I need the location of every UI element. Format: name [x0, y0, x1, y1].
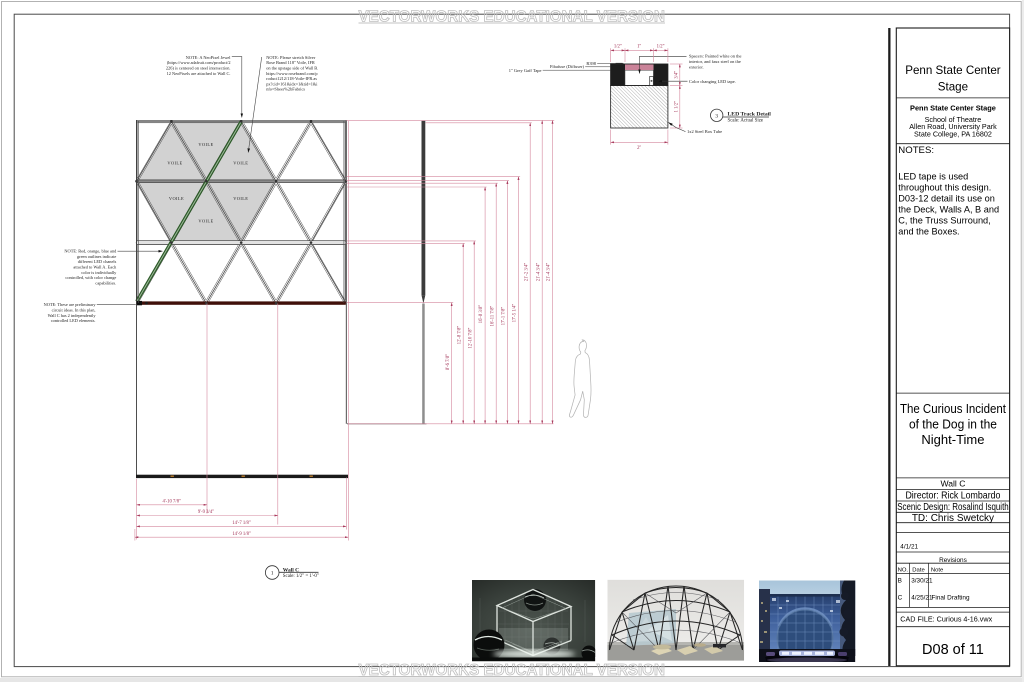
svg-text:4/1/21: 4/1/21 [900, 543, 918, 550]
svg-text:17'-5 1/4": 17'-5 1/4" [513, 304, 518, 323]
svg-text:1": 1" [637, 45, 641, 50]
svg-text:Night-Time: Night-Time [921, 432, 984, 447]
svg-text:TD: Chris Swetcky: TD: Chris Swetcky [912, 513, 994, 524]
svg-text:14'-9 1/8": 14'-9 1/8" [232, 532, 251, 537]
svg-text:17'-1 7/8": 17'-1 7/8" [502, 307, 507, 326]
svg-text:14'-7 1/8": 14'-7 1/8" [232, 521, 251, 526]
svg-text:9'-9 3/4": 9'-9 3/4" [198, 510, 214, 515]
svg-text:throughout this design.: throughout this design. [898, 183, 991, 193]
svg-text:16'-11 7/8": 16'-11 7/8" [490, 306, 495, 327]
svg-text:1: 1 [271, 571, 274, 577]
svg-text:The Curious Incident: The Curious Incident [900, 401, 1006, 416]
svg-text:Penn State Center: Penn State Center [905, 64, 1001, 77]
svg-text:State College, PA 16802: State College, PA 16802 [914, 130, 992, 139]
svg-text:CAD FILE: Curious 4-16.vwx: CAD FILE: Curious 4-16.vwx [900, 615, 992, 624]
svg-text:12 NeoPixels are attached to W: 12 NeoPixels are attached to Wall C. [167, 71, 231, 76]
svg-text:D03-12 detail its use on: D03-12 detail its use on [898, 194, 995, 204]
svg-text:NO.: NO. [898, 568, 909, 574]
svg-text:21'-4 3/4": 21'-4 3/4" [536, 263, 541, 282]
svg-text:Wall C: Wall C [940, 479, 965, 489]
svg-text:different LED chanels: different LED chanels [78, 259, 117, 264]
svg-text:C, the Truss Surround,: C, the Truss Surround, [898, 216, 990, 226]
svg-text:21'-2 3/4": 21'-2 3/4" [524, 263, 529, 282]
svg-text:12'-8 7/8": 12'-8 7/8" [457, 326, 462, 345]
svg-text:Spacers: Painted white on the: Spacers: Painted white on the [689, 54, 742, 59]
svg-text:LED Track Detail: LED Track Detail [728, 111, 772, 117]
svg-text:21'-4 3/4": 21'-4 3/4" [547, 263, 552, 282]
svg-text:VOILE: VOILE [198, 218, 213, 223]
svg-text:C: C [898, 595, 903, 602]
svg-text:(https://www.adafruit.com/prod: (https://www.adafruit.com/product/2 [167, 60, 231, 65]
svg-text:Director: Rick Lombardo: Director: Rick Lombardo [905, 491, 1000, 502]
svg-text:green outlines indicate: green outlines indicate [77, 254, 116, 259]
svg-text:NOTE: Please stretch Silver: NOTE: Please stretch Silver [266, 55, 316, 60]
svg-text:3: 3 [715, 113, 718, 119]
svg-text:1/2": 1/2" [657, 45, 665, 50]
svg-text:Scale: 1/2" = 1'-0": Scale: 1/2" = 1'-0" [283, 574, 319, 579]
svg-text:Color changing LED tape.: Color changing LED tape. [689, 79, 736, 84]
svg-text:Date: Date [912, 568, 925, 574]
svg-text:VOILE: VOILE [233, 196, 248, 201]
svg-text:px?cid=161&idx=1&tid=1&i: px?cid=161&idx=1&tid=1&i [266, 81, 318, 86]
svg-text:the Deck, Walls A, B and: the Deck, Walls A, B and [898, 205, 999, 215]
svg-text:226) is centered on steel inte: 226) is centered on steel intersection. [166, 65, 231, 70]
svg-text:Wall C: Wall C [283, 567, 299, 573]
svg-text:controlled LED elements.: controlled LED elements. [51, 318, 96, 323]
svg-text:B: B [898, 578, 902, 585]
svg-text:Final Drafting: Final Drafting [932, 595, 970, 602]
svg-text:LED tape is used: LED tape is used [898, 172, 968, 182]
svg-text:NOTE: A NeoPixel Jewel: NOTE: A NeoPixel Jewel [186, 55, 232, 60]
svg-text:4/25/21: 4/25/21 [911, 595, 933, 602]
svg-text:8'-6 7/8": 8'-6 7/8" [446, 354, 451, 370]
svg-text:Revisions: Revisions [939, 557, 967, 564]
svg-text:Note: Note [931, 568, 944, 574]
svg-text:12'-10 7/8": 12'-10 7/8" [468, 327, 473, 348]
svg-text:Scale: Actual Size: Scale: Actual Size [728, 119, 764, 124]
svg-text:1/2": 1/2" [614, 45, 622, 50]
svg-text:https://www.rosebrand.com/p: https://www.rosebrand.com/p [266, 71, 317, 76]
svg-text:D08 of 11: D08 of 11 [922, 642, 984, 658]
svg-text:roduct1212/118-Voile-IFR.as: roduct1212/118-Voile-IFR.as [266, 76, 317, 81]
svg-text:R398: R398 [586, 61, 596, 66]
svg-text:attached to Wall A. Each: attached to Wall A. Each [73, 265, 117, 270]
svg-text:VOILE: VOILE [169, 196, 184, 201]
svg-text:16'-8 3/8": 16'-8 3/8" [479, 305, 484, 324]
svg-text:of the Dog in the: of the Dog in the [909, 417, 997, 432]
svg-text:Stage: Stage [938, 80, 968, 93]
svg-text:3/4": 3/4" [674, 71, 679, 79]
svg-text:and the Boxes.: and the Boxes. [898, 227, 959, 237]
svg-text:NOTES:: NOTES: [898, 145, 934, 156]
svg-text:nfo=Sheer%2bFabrics: nfo=Sheer%2bFabrics [266, 87, 305, 92]
svg-text:capabilities.: capabilities. [95, 280, 116, 285]
svg-text:VOILE: VOILE [167, 161, 182, 166]
svg-text:1x2 Steel Box Tube: 1x2 Steel Box Tube [687, 129, 722, 134]
svg-text:Penn State Center Stage: Penn State Center Stage [910, 104, 996, 113]
svg-text:NOTE: These are preliminary: NOTE: These are preliminary [44, 302, 97, 307]
svg-text:1" Grey Gaff Tape: 1" Grey Gaff Tape [509, 68, 542, 73]
svg-text:Fibafuse (Diffuser): Fibafuse (Diffuser) [550, 64, 585, 69]
svg-text:2": 2" [637, 146, 641, 151]
svg-text:Wall C has 2 independently: Wall C has 2 independently [48, 313, 97, 318]
svg-text:color is individually: color is individually [81, 270, 117, 275]
svg-text:on the upstage side of Wall B.: on the upstage side of Wall B. [266, 65, 318, 70]
svg-text:3/30/21: 3/30/21 [911, 578, 933, 585]
svg-text:1 1/2": 1 1/2" [674, 101, 679, 113]
svg-text:4'-10 7/8": 4'-10 7/8" [162, 499, 181, 504]
svg-text:exterior.: exterior. [689, 64, 704, 69]
svg-text:Scenic Design: Rosalind Isquit: Scenic Design: Rosalind Isquith [897, 502, 1009, 513]
svg-text:VOILE: VOILE [233, 161, 248, 166]
svg-text:VOILE: VOILE [198, 142, 213, 147]
